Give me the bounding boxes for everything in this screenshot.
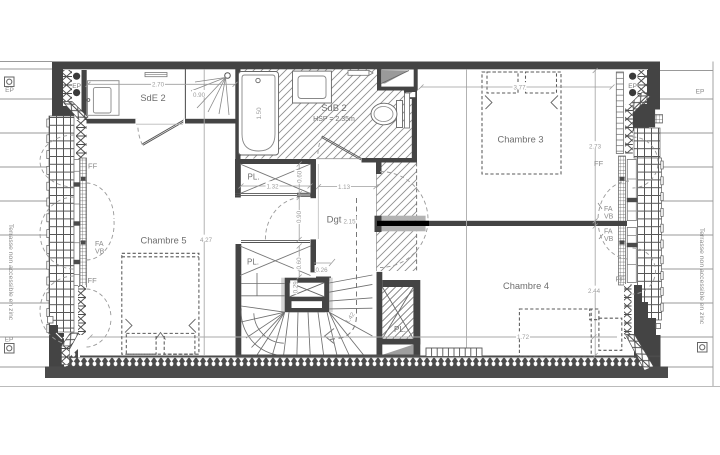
svg-text:Dgt: Dgt xyxy=(327,215,342,226)
svg-text:EP: EP xyxy=(5,337,14,344)
svg-text:FA: FA xyxy=(604,229,613,236)
svg-text:1.32: 1.32 xyxy=(266,183,279,190)
svg-text:0.26: 0.26 xyxy=(315,267,328,274)
svg-text:Chambre 4: Chambre 4 xyxy=(503,281,549,291)
svg-text:FA: FA xyxy=(95,241,104,248)
svg-text:EP: EP xyxy=(628,83,637,90)
svg-text:FF: FF xyxy=(616,275,626,284)
svg-text:3.77: 3.77 xyxy=(513,84,526,91)
svg-text:Chambre 3: Chambre 3 xyxy=(498,135,544,145)
svg-text:0.90: 0.90 xyxy=(296,210,303,223)
svg-text:1.13: 1.13 xyxy=(338,184,351,191)
svg-text:PL.: PL. xyxy=(248,173,260,182)
svg-text:Chambre 5: Chambre 5 xyxy=(141,236,187,246)
svg-text:1.50: 1.50 xyxy=(256,107,263,120)
svg-text:FF: FF xyxy=(594,159,604,168)
svg-text:VB: VB xyxy=(604,236,614,243)
svg-text:SdE 2: SdE 2 xyxy=(140,93,165,103)
svg-text:0.60: 0.60 xyxy=(297,170,304,183)
svg-text:PL.: PL. xyxy=(247,258,259,267)
svg-text:0.29: 0.29 xyxy=(292,281,299,294)
svg-text:2.15: 2.15 xyxy=(343,218,356,225)
svg-text:VB: VB xyxy=(95,249,105,256)
svg-text:SdB 2: SdB 2 xyxy=(321,103,346,113)
svg-text:Terrasse non accessible en zin: Terrasse non accessible en zinc xyxy=(7,224,14,321)
svg-text:HSP = 2.35m: HSP = 2.35m xyxy=(313,116,355,123)
svg-text:Terrasse non accessible en zin: Terrasse non accessible en zinc xyxy=(698,228,705,325)
svg-text:4.27: 4.27 xyxy=(200,237,213,244)
svg-text:FF: FF xyxy=(88,276,98,285)
svg-text:EP: EP xyxy=(696,89,705,96)
svg-text:EP: EP xyxy=(72,83,81,90)
svg-text:2.73: 2.73 xyxy=(589,143,602,150)
svg-text:PL.: PL. xyxy=(394,325,406,334)
svg-text:EP: EP xyxy=(5,87,14,94)
svg-text:0.60: 0.60 xyxy=(296,257,303,270)
svg-text:VB: VB xyxy=(604,214,614,221)
svg-text:0.90: 0.90 xyxy=(193,92,206,99)
svg-text:1.72: 1.72 xyxy=(517,334,530,341)
svg-text:FF: FF xyxy=(88,162,98,171)
svg-text:2.44: 2.44 xyxy=(588,288,601,295)
svg-text:FA: FA xyxy=(604,206,613,213)
svg-text:2.70: 2.70 xyxy=(152,82,165,89)
